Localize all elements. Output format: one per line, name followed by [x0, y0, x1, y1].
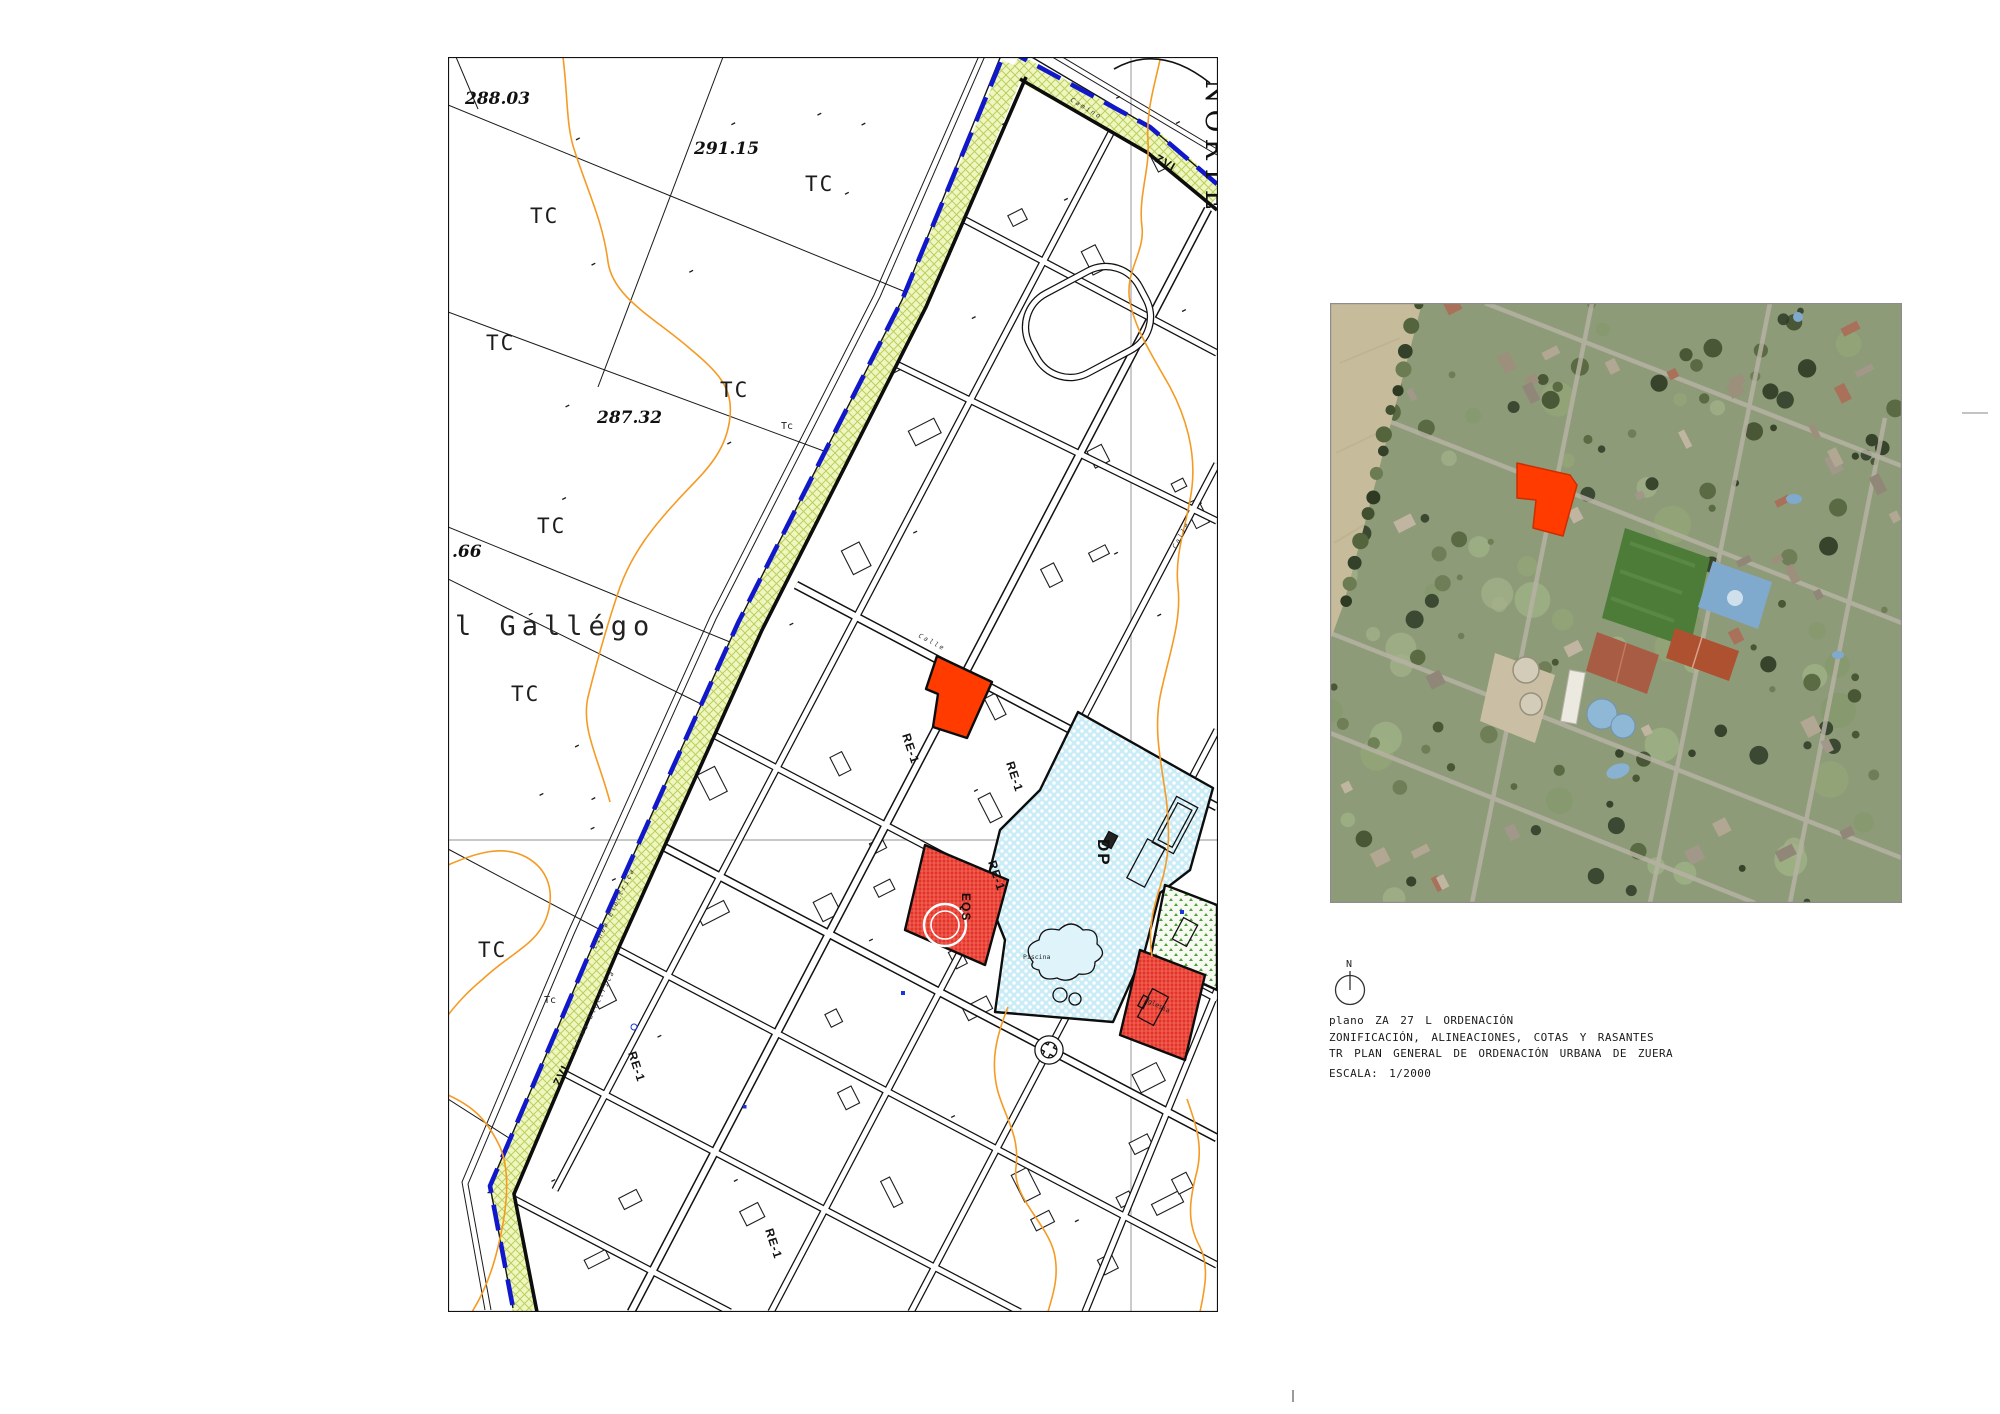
plan-title: plano ZA 27 L ORDENACIÓN	[1329, 1014, 1514, 1027]
elevation-label: .66	[452, 542, 482, 562]
tc-label: TC	[720, 378, 749, 402]
eqs-zone-label: EQS	[959, 893, 973, 921]
norte-label: NORTE	[1199, 79, 1218, 216]
tc-label: TC	[530, 204, 559, 228]
dp-zone-label: DP	[1094, 839, 1113, 867]
tc-small-label: Tc	[544, 995, 556, 1006]
plan-subtitle-2: TR PLAN GENERAL DE ORDENACIÓN URBANA DE …	[1329, 1047, 1673, 1060]
ordenacion-map: 288.03 291.15 287.32 .66 TC TC TC TC TC …	[448, 57, 1218, 1312]
elevation-label: 291.15	[693, 139, 759, 159]
river-label: l Gallégo	[455, 611, 655, 642]
round-tank	[1513, 657, 1539, 683]
north-label: N	[1346, 959, 1352, 970]
aerial-photo	[1330, 303, 1902, 903]
registration-tick	[1962, 412, 1988, 414]
plan-subtitle-1: ZONIFICACIÓN, ALINEACIONES, COTAS Y RASA…	[1329, 1031, 1654, 1044]
registration-tick	[1292, 1390, 1294, 1402]
tc-small-label: Tc	[781, 421, 793, 432]
tc-label: TC	[511, 682, 540, 706]
plan-sheet: 288.03 291.15 287.32 .66 TC TC TC TC TC …	[0, 0, 2000, 1414]
elevation-label: 287.32	[596, 408, 662, 428]
elevation-label: 288.03	[464, 89, 530, 109]
tc-label: TC	[805, 172, 834, 196]
round-tank	[1520, 693, 1542, 715]
tc-label: TC	[537, 514, 566, 538]
plan-scale: ESCALA: 1/2000	[1329, 1067, 1431, 1080]
north-indicator: N	[1330, 956, 1374, 1010]
tc-label: TC	[478, 938, 507, 962]
tc-label: TC	[486, 331, 515, 355]
piscina-label: Piscina	[1023, 953, 1050, 961]
